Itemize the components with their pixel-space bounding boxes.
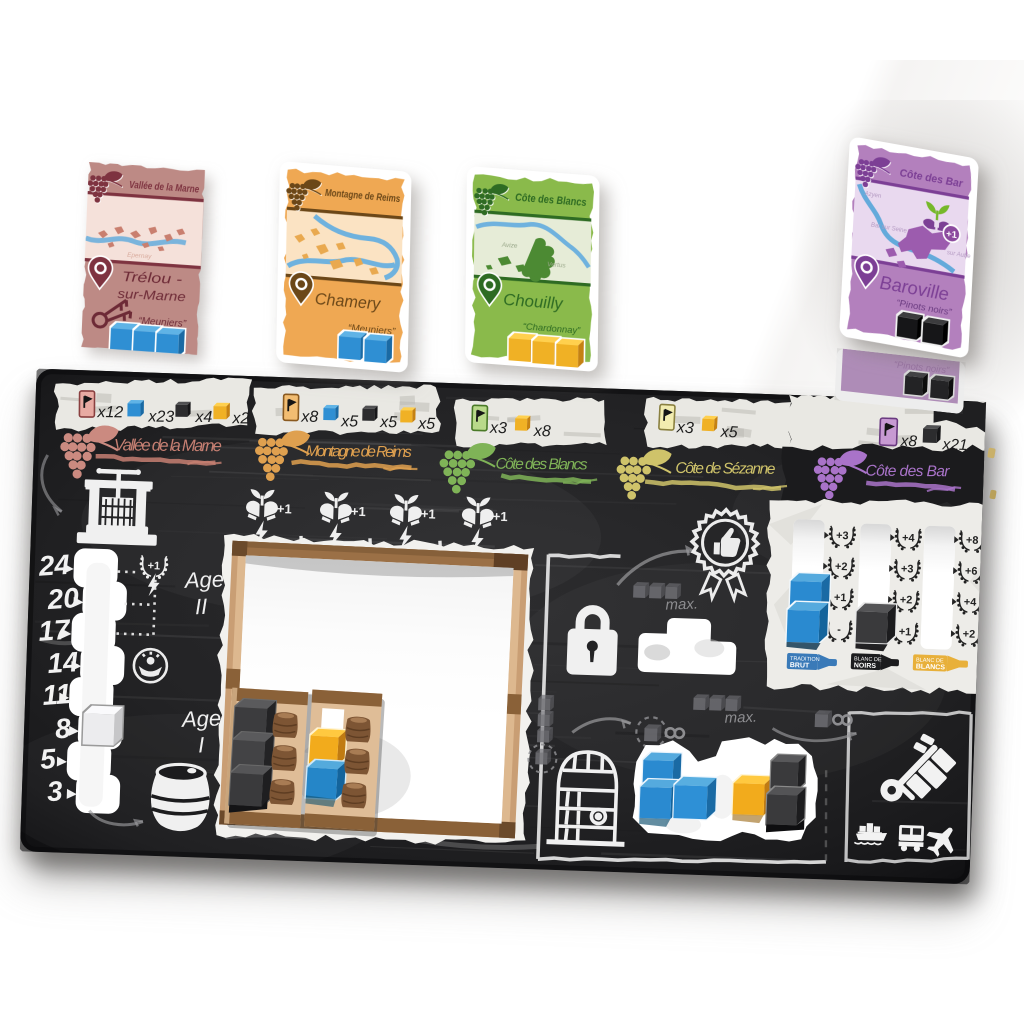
svg-text:3: 3: [46, 775, 64, 807]
svg-text:max.: max.: [665, 596, 698, 614]
svg-text:x4: x4: [194, 409, 212, 426]
svg-text:14: 14: [46, 646, 80, 679]
svg-text:5: 5: [39, 743, 57, 775]
svg-text:+4: +4: [902, 532, 915, 544]
svg-text:+1: +1: [421, 506, 436, 522]
svg-text:Côte de Sézanne: Côte de Sézanne: [675, 460, 776, 478]
svg-text:+1: +1: [946, 228, 958, 241]
svg-text:11: 11: [41, 678, 72, 711]
svg-text:+4: +4: [964, 596, 977, 608]
svg-text:+2: +2: [900, 594, 913, 606]
svg-text:17: 17: [37, 614, 72, 647]
svg-text:+3: +3: [836, 530, 849, 542]
svg-text:Vallée de la Marne: Vallée de la Marne: [114, 436, 222, 455]
svg-text:II: II: [195, 594, 208, 619]
svg-text:x8: x8: [533, 423, 551, 440]
svg-text:+6: +6: [965, 565, 978, 577]
svg-text:max.: max.: [724, 709, 757, 727]
svg-text:Trélou -: Trélou -: [122, 268, 183, 287]
svg-text:Côte des Blancs: Côte des Blancs: [495, 456, 587, 474]
svg-text:x3: x3: [675, 419, 694, 437]
svg-text:x5: x5: [340, 413, 358, 430]
svg-text:x12: x12: [96, 404, 123, 421]
svg-text:Vertus: Vertus: [547, 261, 566, 269]
svg-text:+1: +1: [277, 501, 292, 517]
svg-text:+8: +8: [966, 534, 979, 546]
svg-text:Age: Age: [182, 567, 224, 593]
svg-text:+1: +1: [147, 560, 160, 572]
svg-text:BLANCS: BLANCS: [916, 663, 946, 671]
svg-text:x5: x5: [417, 416, 435, 433]
svg-text:+1: +1: [899, 626, 912, 638]
svg-text:x8: x8: [300, 409, 318, 426]
svg-text:x5: x5: [719, 424, 738, 442]
svg-text:x2: x2: [231, 410, 249, 427]
svg-text:x3: x3: [489, 420, 507, 437]
svg-text:BRUT: BRUT: [790, 662, 810, 670]
svg-text:+2: +2: [835, 561, 848, 573]
svg-text:Montagne de Reims: Montagne de Reims: [306, 443, 412, 461]
svg-text:+1: +1: [834, 592, 847, 604]
svg-text:Avize: Avize: [501, 242, 518, 250]
svg-text:Côte des Bar: Côte des Bar: [865, 463, 950, 481]
svg-text:NOIRS: NOIRS: [854, 662, 877, 670]
svg-text:I: I: [198, 732, 205, 757]
svg-text:+3: +3: [901, 563, 914, 575]
svg-text:+2: +2: [963, 628, 976, 640]
svg-text:+1: +1: [493, 509, 508, 525]
svg-text:x23: x23: [147, 409, 174, 426]
svg-text:Age: Age: [180, 706, 222, 732]
svg-text:+1: +1: [351, 504, 366, 520]
svg-text:x5: x5: [379, 414, 397, 431]
